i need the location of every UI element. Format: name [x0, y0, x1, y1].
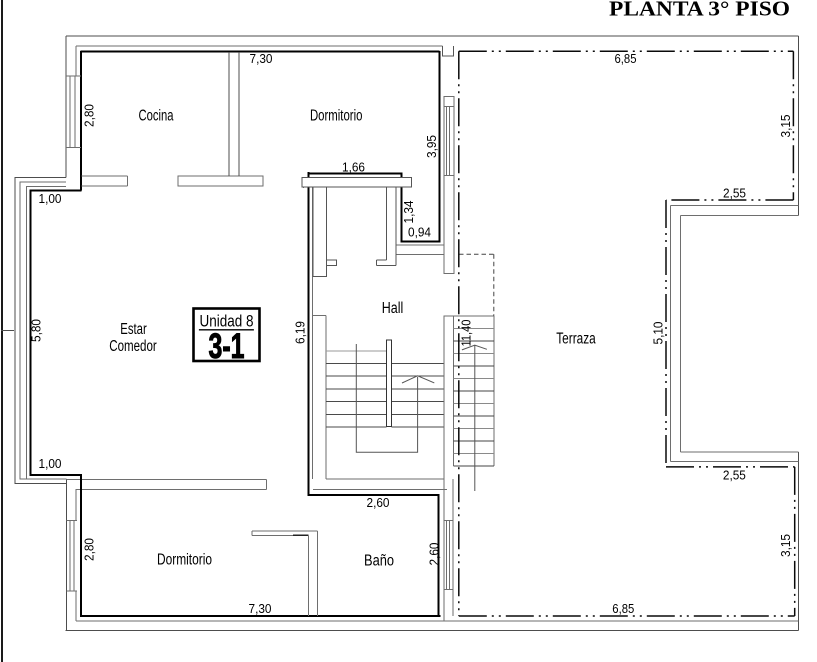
svg-text:3,95: 3,95	[424, 135, 439, 158]
svg-text:6,85: 6,85	[612, 601, 634, 616]
svg-text:1,00: 1,00	[39, 191, 62, 206]
svg-text:Dormitorio: Dormitorio	[310, 108, 363, 125]
svg-text:1,00: 1,00	[39, 456, 62, 471]
svg-text:Dormitorio: Dormitorio	[157, 552, 212, 569]
svg-text:Cocina: Cocina	[139, 108, 174, 125]
svg-text:Comedor: Comedor	[109, 338, 157, 355]
svg-text:6,19: 6,19	[293, 321, 308, 344]
svg-text:1,66: 1,66	[342, 159, 365, 174]
svg-text:Baño: Baño	[364, 553, 394, 570]
svg-text:6,85: 6,85	[615, 51, 637, 66]
svg-text:2,55: 2,55	[723, 467, 746, 482]
svg-text:7,30: 7,30	[250, 51, 273, 66]
svg-text:5,10: 5,10	[651, 322, 666, 345]
svg-text:Hall: Hall	[382, 300, 404, 317]
svg-text:5,80: 5,80	[29, 319, 44, 342]
svg-text:Terraza: Terraza	[556, 330, 596, 347]
svg-text:1,34: 1,34	[401, 201, 416, 224]
svg-text:2,60: 2,60	[367, 495, 390, 510]
svg-text:2,80: 2,80	[82, 538, 97, 561]
svg-text:2,55: 2,55	[723, 185, 746, 200]
svg-text:3,15: 3,15	[778, 534, 793, 557]
svg-text:3-1: 3-1	[209, 327, 245, 366]
svg-text:PLANTA 3° PISO: PLANTA 3° PISO	[609, 0, 790, 21]
svg-text:2,80: 2,80	[82, 104, 97, 127]
svg-text:11,40: 11,40	[459, 320, 474, 347]
svg-text:3,15: 3,15	[778, 115, 793, 138]
svg-text:7,30: 7,30	[249, 601, 272, 616]
svg-text:0,94: 0,94	[408, 224, 431, 239]
svg-text:2,60: 2,60	[427, 543, 442, 566]
svg-text:Estar: Estar	[120, 321, 147, 338]
